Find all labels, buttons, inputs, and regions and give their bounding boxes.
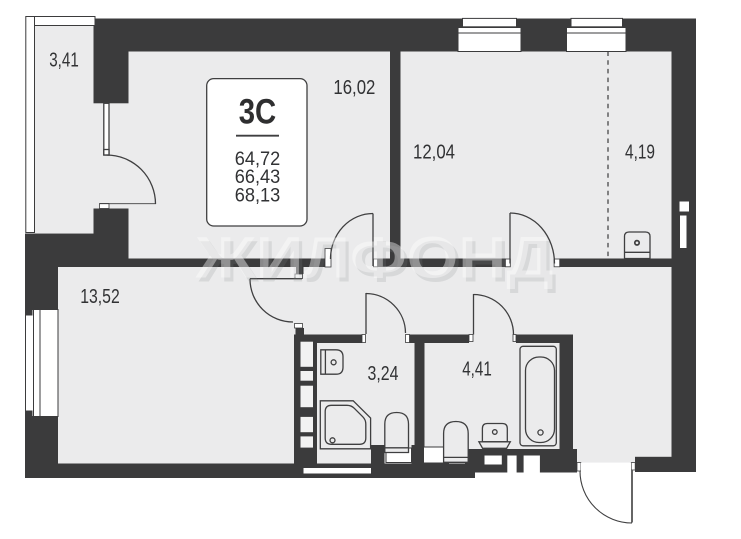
svg-text:68,13: 68,13 <box>235 185 281 207</box>
svg-text:13,52: 13,52 <box>80 285 120 308</box>
svg-text:4,19: 4,19 <box>625 140 655 163</box>
svg-text:3С: 3С <box>239 92 277 132</box>
svg-text:3,24: 3,24 <box>368 362 399 385</box>
svg-text:16,02: 16,02 <box>333 76 375 99</box>
svg-text:12,04: 12,04 <box>413 140 455 163</box>
svg-text:4,41: 4,41 <box>462 357 492 380</box>
svg-text:3,41: 3,41 <box>49 48 79 71</box>
svg-text:ЖИЛФОНД: ЖИЛФОНД <box>194 226 553 291</box>
